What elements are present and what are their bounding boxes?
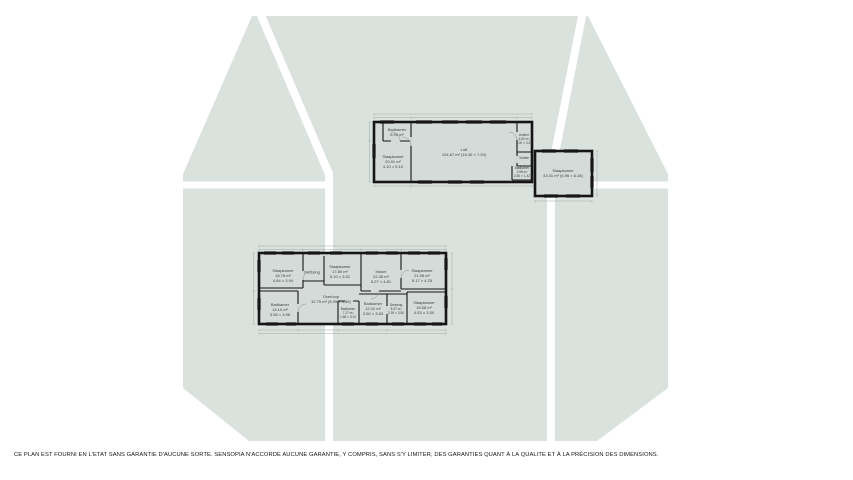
room-label-slaapkamer-upper-left: Slaapkamer 20.91 m² 4.10 × 5.10 bbox=[382, 154, 403, 170]
room-label-badkamer-3: Badkamer 12.41 m² 3.50 × 3.63 bbox=[363, 301, 383, 317]
room-label-slaapkamer-1: Slaapkamer 18.78 m² 4.84 × 3.94 bbox=[272, 268, 293, 284]
room-label-badkamer-small: Badkamer 3.98 m² 2.80 × 1.42 bbox=[514, 166, 530, 178]
room-label-dressing-2: Dressing 8.37 m² 2.39 × 3.50 bbox=[388, 303, 404, 315]
background-house-silhouette bbox=[0, 0, 853, 480]
room-label-dressing-1: Dressing bbox=[304, 269, 320, 274]
room-label-loft: Loft 104.67 m² (16.45 × 7.20) bbox=[442, 147, 486, 157]
lower-floorplan-walls bbox=[250, 244, 460, 346]
room-label-inkom: Inkom 22.28 m² 5.27 × 4.81 bbox=[371, 269, 391, 285]
room-label-badkamer-1: Badkamer 14.10 m² 3.56 × 3.96 bbox=[270, 302, 290, 318]
room-label-andere: Andere 6.50 m² 2.00 × 3.25 bbox=[516, 133, 532, 145]
upper-floorplan: Badkamer 5.95 m² Slaapkamer 20.91 m² 4.1… bbox=[366, 112, 602, 206]
room-label-slaapkamer-4: Slaapkamer 15.58 m² 4.53 × 3.50 bbox=[413, 300, 434, 316]
room-label-toilette: Toilette bbox=[519, 156, 529, 160]
lower-floorplan: Slaapkamer 18.78 m² 4.84 × 3.94 Dressing… bbox=[250, 244, 460, 346]
room-label-badkamer-2: Badkamer 7.17 m² 1.68 × 3.10 bbox=[340, 307, 356, 319]
room-label-slaapkamer-3: Slaapkamer 21.96 m² 5.17 × 4.25 bbox=[411, 268, 432, 284]
room-label-badkamer-upper: Badkamer 5.95 m² bbox=[388, 127, 406, 137]
room-label-overloop: Overloop 32.75 m² (8.95 × 4.86) bbox=[311, 294, 351, 304]
disclaimer-text: CE PLAN EST FOURNI EN L'ETAT SANS GARANT… bbox=[14, 452, 658, 458]
room-label-slaapkamer-detached: Slaapkamer 43.01 m² (6.96 × 6.18) bbox=[543, 168, 583, 178]
room-label-slaapkamer-2: Slaapkamer 17.80 m² 5.10 × 3.51 bbox=[329, 264, 350, 280]
silhouette-shape bbox=[183, 16, 668, 441]
